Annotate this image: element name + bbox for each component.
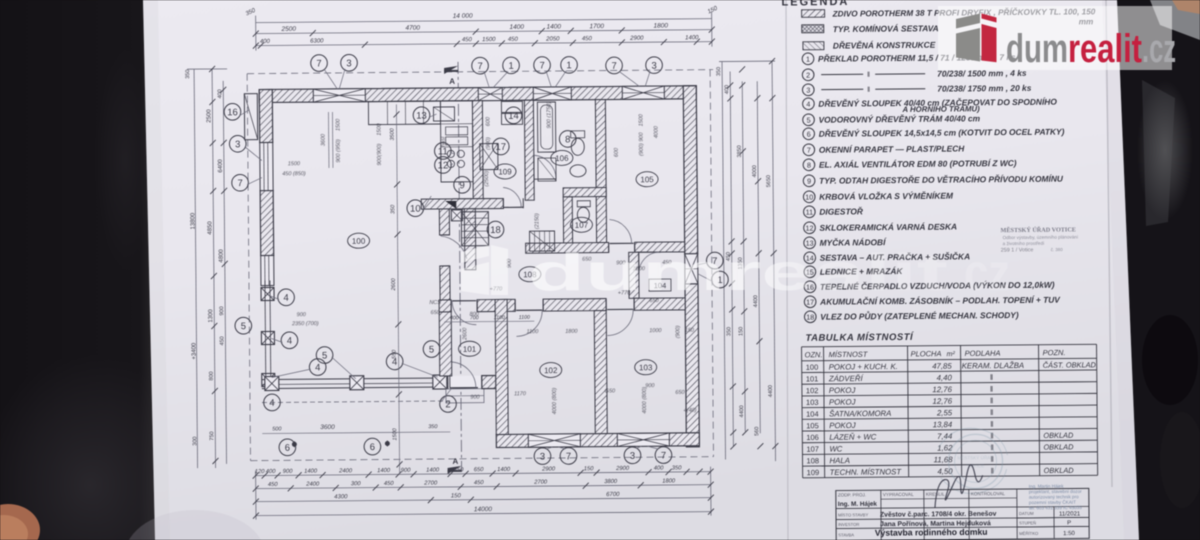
- svg-text:101: 101: [463, 345, 477, 354]
- svg-text:3: 3: [630, 451, 635, 462]
- svg-text:OBKLAD: OBKLAD: [1043, 442, 1074, 451]
- svg-text:150: 150: [685, 328, 695, 334]
- svg-text:1400: 1400: [304, 469, 318, 475]
- svg-text:8: 8: [807, 161, 811, 170]
- svg-text:750: 750: [209, 431, 215, 440]
- svg-text:101: 101: [806, 374, 819, 383]
- svg-text:450: 450: [268, 482, 278, 488]
- svg-text:350: 350: [390, 204, 396, 214]
- svg-text:5: 5: [241, 321, 246, 332]
- svg-text:tel. 603 431 339 IC 45035: tel. 603 431 339 IC 45035: [1029, 505, 1082, 510]
- svg-text:2500: 2500: [206, 109, 212, 123]
- svg-text:MĚŘÍTKO: MĚŘÍTKO: [1019, 531, 1039, 536]
- svg-text:4000 (800): 4000 (800): [642, 387, 648, 414]
- svg-text:900: 900: [645, 383, 655, 389]
- svg-text:A HORNÍHO TRÁMU): A HORNÍHO TRÁMU): [901, 104, 980, 114]
- svg-text:10: 10: [805, 193, 813, 202]
- svg-text:‖: ‖: [990, 373, 993, 382]
- svg-text:12,76: 12,76: [932, 397, 952, 406]
- svg-text:1170: 1170: [514, 391, 527, 397]
- svg-text:150: 150: [738, 327, 744, 336]
- svg-text:MÍSTO STAVBY: MÍSTO STAVBY: [838, 512, 868, 517]
- svg-text:MĚSTSKÝ ÚŘAD VOTICE: MĚSTSKÝ ÚŘAD VOTICE: [1000, 225, 1075, 234]
- svg-text:2900: 2900: [541, 467, 556, 473]
- svg-text:106: 106: [806, 433, 819, 442]
- svg-text:400: 400: [654, 466, 664, 472]
- svg-text:1800: 1800: [565, 329, 578, 335]
- svg-text:900(900): 900(900): [377, 143, 383, 165]
- svg-text:700: 700: [470, 315, 479, 321]
- svg-text:WC: WC: [829, 444, 842, 453]
- svg-text:1500: 1500: [288, 161, 301, 167]
- svg-text:3: 3: [806, 86, 810, 95]
- svg-text:900 (1750): 900 (1750): [546, 102, 552, 129]
- svg-text:7: 7: [316, 58, 321, 69]
- svg-text:13,84: 13,84: [933, 420, 953, 429]
- svg-text:TECHN. MÍSTNOST: TECHN. MÍSTNOST: [830, 467, 903, 477]
- svg-text:Odbor výstavby, územního pláno: Odbor výstavby, územního plánování: [1003, 234, 1079, 240]
- svg-text:8: 8: [565, 134, 570, 145]
- svg-text:PLOCHA: PLOCHA: [911, 349, 942, 358]
- svg-text:17: 17: [495, 142, 506, 153]
- svg-text:DŘEVĚNÝ SLOUPEK 14,5x14,5 cm: DŘEVĚNÝ SLOUPEK 14,5x14,5 cm (KOTVIT DO …: [819, 126, 1065, 139]
- svg-text:m²: m²: [947, 351, 956, 358]
- svg-text:6300: 6300: [310, 39, 324, 45]
- svg-text:POKOJ: POKOJ: [829, 397, 856, 406]
- svg-text:3: 3: [651, 61, 656, 72]
- svg-text:ČÁST. OBKLAD: ČÁST. OBKLAD: [1043, 360, 1097, 369]
- svg-text:2: 2: [806, 71, 810, 80]
- svg-text:hasl: hasl: [441, 136, 447, 147]
- svg-text:650: 650: [675, 390, 685, 396]
- svg-text:4850: 4850: [207, 221, 213, 235]
- svg-text:+3400: +3400: [191, 342, 197, 360]
- svg-text:1400: 1400: [497, 467, 511, 473]
- svg-text:.cz: .cz: [1142, 27, 1176, 71]
- svg-text:600: 600: [614, 147, 620, 157]
- svg-text:106: 106: [555, 154, 569, 163]
- svg-text:1500: 1500: [392, 427, 398, 440]
- svg-text:6: 6: [807, 130, 811, 139]
- svg-text:1500: 1500: [482, 37, 496, 43]
- svg-text:TYP. KOMÍNOVÁ SESTAVA: TYP. KOMÍNOVÁ SESTAVA: [833, 23, 939, 34]
- svg-text:2,55: 2,55: [936, 408, 953, 417]
- svg-text:pozemní stavby ČKAIT: pozemní stavby ČKAIT: [1029, 499, 1076, 505]
- svg-text:(2500): (2500): [484, 170, 490, 186]
- svg-text:1: 1: [508, 61, 513, 72]
- svg-text:2050: 2050: [545, 36, 560, 42]
- svg-text:POZN.: POZN.: [1043, 348, 1066, 357]
- svg-text:3500: 3500: [390, 127, 396, 140]
- svg-text:1700: 1700: [589, 23, 604, 30]
- svg-text:DATUM: DATUM: [1019, 511, 1034, 516]
- svg-text:300: 300: [192, 437, 198, 446]
- svg-text:4: 4: [287, 336, 292, 347]
- svg-text:(900) 900: (900) 900: [639, 132, 645, 157]
- svg-text:600: 600: [486, 116, 492, 126]
- svg-text:VYPRACOVAL: VYPRACOVAL: [883, 492, 914, 497]
- svg-text:70/238/ 1750 mm , 20 ks: 70/238/ 1750 mm , 20 ks: [937, 83, 1031, 94]
- svg-text:KERAM. DLAŽBA: KERAM. DLAŽBA: [962, 361, 1024, 371]
- svg-text:5: 5: [429, 344, 434, 355]
- svg-text:1: 1: [566, 60, 571, 71]
- svg-text:G50: G50: [605, 388, 616, 394]
- svg-text:1100: 1100: [494, 315, 505, 321]
- svg-text:2900: 2900: [629, 36, 644, 42]
- svg-text:dum: dum: [1006, 27, 1068, 71]
- svg-text:1800: 1800: [653, 23, 668, 30]
- svg-text:.cz: .cz: [952, 244, 1010, 302]
- svg-text:STUPEŇ: STUPEŇ: [1019, 520, 1036, 525]
- svg-text:7: 7: [539, 61, 544, 72]
- svg-text:6700: 6700: [606, 492, 620, 498]
- svg-text:2500: 2500: [280, 26, 296, 33]
- svg-text:105: 105: [806, 421, 819, 430]
- svg-text:dumrealit: dumrealit: [528, 244, 948, 302]
- svg-text:900: 900: [283, 469, 293, 475]
- svg-text:4300: 4300: [334, 494, 348, 500]
- svg-text:1: 1: [806, 55, 810, 64]
- svg-text:OBKLAD: OBKLAD: [1044, 466, 1075, 475]
- svg-text:47,85: 47,85: [932, 362, 952, 371]
- svg-text:900: 900: [401, 468, 411, 474]
- svg-text:SKLOKERAMICKÁ VARNÁ DESKA: SKLOKERAMICKÁ VARNÁ DESKA: [819, 221, 957, 232]
- svg-text:MÍSTNOST: MÍSTNOST: [829, 350, 869, 359]
- svg-text:104: 104: [806, 410, 819, 419]
- svg-text:450: 450: [219, 336, 225, 345]
- svg-text:ZÁDVEŘÍ: ZÁDVEŘÍ: [828, 374, 865, 383]
- svg-text:VODOROVNÝ DŘEVĚNÝ TRÁM 40/40: VODOROVNÝ DŘEVĚNÝ TRÁM 40/40 cm: [818, 112, 980, 124]
- svg-text:‖: ‖: [867, 87, 870, 94]
- svg-text:350: 350: [716, 67, 722, 76]
- svg-text:4000 (800): 4000 (800): [552, 388, 558, 415]
- svg-text:4: 4: [283, 293, 288, 304]
- svg-text:3600: 3600: [321, 133, 327, 146]
- svg-text:4: 4: [806, 100, 810, 109]
- svg-text:11: 11: [438, 146, 448, 157]
- svg-text:5650: 5650: [766, 175, 772, 187]
- svg-text:KRESLIL: KRESLIL: [926, 492, 945, 497]
- svg-text:1400: 1400: [377, 468, 391, 474]
- svg-text:‖: ‖: [990, 420, 993, 429]
- svg-text:18: 18: [490, 225, 501, 236]
- svg-text:107: 107: [806, 445, 819, 454]
- svg-text:1500: 1500: [336, 118, 342, 131]
- svg-text:4000: 4000: [654, 125, 660, 138]
- svg-text:2600: 2600: [462, 327, 468, 341]
- svg-text:400: 400: [266, 469, 276, 475]
- svg-text:A: A: [449, 77, 455, 86]
- svg-text:LEGENDA: LEGENDA: [781, 0, 849, 9]
- svg-text:13800: 13800: [190, 212, 196, 229]
- svg-text:POKOJ: POKOJ: [829, 421, 856, 430]
- svg-text:450: 450: [582, 36, 593, 42]
- svg-text:3800: 3800: [604, 479, 618, 485]
- svg-text:10: 10: [410, 204, 421, 215]
- svg-text:650: 650: [474, 467, 484, 473]
- svg-text:1100: 1100: [526, 329, 539, 335]
- svg-text:103: 103: [639, 363, 653, 372]
- svg-text:350: 350: [726, 327, 732, 336]
- svg-text:P: P: [1067, 521, 1071, 527]
- svg-text:450 (850): 450 (850): [282, 171, 306, 177]
- svg-text:100: 100: [806, 363, 819, 372]
- svg-text:6400: 6400: [218, 159, 224, 173]
- svg-text:6: 6: [285, 443, 290, 454]
- svg-text:7: 7: [611, 61, 616, 72]
- svg-text:900: 900: [297, 312, 307, 318]
- svg-text:DŘEVĚNÁ KONSTRUKCE: DŘEVĚNÁ KONSTRUKCE: [833, 39, 936, 51]
- svg-text:9: 9: [807, 177, 811, 186]
- svg-text:7: 7: [566, 451, 571, 462]
- svg-text:KRBOVÁ VLOŽKA S VÝMĚNÍKEM: KRBOVÁ VLOŽKA S VÝMĚNÍKEM: [819, 190, 954, 202]
- svg-text:4800: 4800: [219, 249, 225, 263]
- svg-text:EL. AXIÁL VENTILÁTOR EDM 80 (: EL. AXIÁL VENTILÁTOR EDM 80 (POTRUBÍ Z W…: [819, 158, 1017, 170]
- svg-text:100: 100: [352, 237, 366, 246]
- svg-text:3: 3: [346, 58, 351, 69]
- svg-text:150: 150: [451, 493, 462, 499]
- svg-text:12: 12: [438, 160, 449, 171]
- svg-text:‖: ‖: [990, 408, 993, 417]
- svg-text:KONTROLOVAL: KONTROLOVAL: [971, 491, 1006, 496]
- svg-text:900: 900: [219, 306, 225, 315]
- svg-text:109: 109: [498, 167, 512, 176]
- svg-text:400: 400: [260, 39, 271, 45]
- svg-text:400: 400: [450, 315, 459, 321]
- svg-text:4,40: 4,40: [937, 373, 953, 382]
- svg-text:Ing. M. Hájek: Ing. M. Hájek: [838, 501, 878, 508]
- svg-text:(2150): (2150): [534, 213, 540, 229]
- svg-text:A: A: [452, 457, 458, 466]
- svg-text:č. 380: č. 380: [1051, 247, 1064, 252]
- svg-text:450: 450: [508, 37, 519, 43]
- svg-text:2900: 2900: [615, 466, 630, 472]
- svg-text:9: 9: [459, 180, 464, 191]
- svg-text:800: 800: [209, 371, 215, 380]
- svg-text:3: 3: [235, 139, 240, 150]
- svg-text:OZN.: OZN.: [805, 350, 823, 359]
- svg-text:1400: 1400: [685, 35, 699, 41]
- svg-text:4000: 4000: [752, 165, 758, 177]
- svg-text:2: 2: [445, 399, 450, 410]
- svg-text:3: 3: [540, 452, 545, 463]
- svg-text:14 000: 14 000: [453, 13, 473, 20]
- svg-text:VLEZ DO PŮDY (ZATEPLENÉ MECHA: VLEZ DO PŮDY (ZATEPLENÉ MECHAN. SCHODY): [820, 309, 1019, 322]
- svg-text:11,68: 11,68: [934, 455, 954, 464]
- svg-text:TABULKA MÍSTNOSTÍ: TABULKA MÍSTNOSTÍ: [805, 332, 915, 344]
- svg-text:650: 650: [431, 310, 441, 316]
- svg-text:500: 500: [272, 426, 282, 432]
- svg-text:1500: 1500: [638, 113, 644, 126]
- svg-text:11: 11: [806, 208, 814, 217]
- svg-text:4(40): 4(40): [684, 408, 697, 414]
- svg-text:POKOJ: POKOJ: [829, 386, 856, 395]
- svg-text:11/2021: 11/2021: [1059, 511, 1081, 517]
- svg-text:OKENNÍ PARAPET — PLAST/PLECH: OKENNÍ PARAPET — PLAST/PLECH: [819, 143, 966, 154]
- svg-text:16: 16: [227, 107, 238, 118]
- svg-text:450: 450: [474, 480, 484, 486]
- svg-text:(900): (900): [675, 325, 681, 338]
- svg-text:7: 7: [477, 61, 482, 72]
- svg-text:3600: 3600: [320, 424, 335, 431]
- svg-text:3850: 3850: [737, 145, 743, 157]
- svg-text:1400: 1400: [426, 468, 440, 474]
- svg-text:1300: 1300: [208, 309, 214, 323]
- svg-text:2700: 2700: [533, 480, 548, 486]
- svg-text:350: 350: [185, 70, 191, 79]
- svg-text:ZODP. PROJ.: ZODP. PROJ.: [838, 492, 866, 497]
- svg-text:7: 7: [237, 178, 242, 189]
- svg-text:4400: 4400: [739, 405, 745, 417]
- svg-text:5: 5: [807, 116, 811, 125]
- svg-text:INVESTOR: INVESTOR: [838, 522, 859, 527]
- svg-text:102: 102: [806, 386, 819, 395]
- svg-text:350: 350: [428, 424, 438, 430]
- svg-text:560: 560: [754, 427, 760, 436]
- svg-text:STAVBA: STAVBA: [838, 532, 854, 537]
- svg-text:14000: 14000: [474, 506, 493, 513]
- svg-text:4: 4: [315, 362, 320, 373]
- svg-text:Zvěstov č.parc. 1708/4 okr. B: Zvěstov č.parc. 1708/4 okr. Benešov: [880, 511, 997, 519]
- svg-text:105: 105: [640, 175, 654, 184]
- svg-text:7: 7: [807, 146, 811, 155]
- svg-text:1100: 1100: [519, 315, 530, 321]
- svg-text:‖: ‖: [867, 72, 870, 79]
- svg-text:150: 150: [584, 466, 594, 472]
- svg-text:(900): (900): [486, 137, 492, 150]
- svg-text:900 (950): 900 (950): [336, 139, 342, 163]
- svg-text:POKOJ + KUCH. K.: POKOJ + KUCH. K.: [829, 362, 898, 372]
- svg-text:4700: 4700: [405, 25, 420, 32]
- svg-text:18: 18: [806, 313, 814, 322]
- svg-text:ŠATNA/KOMORA: ŠATNA/KOMORA: [829, 409, 891, 419]
- svg-text:2400: 2400: [305, 482, 320, 488]
- svg-text:2600: 2600: [391, 277, 397, 291]
- svg-text:900: 900: [470, 395, 480, 401]
- svg-text:‖: ‖: [990, 396, 993, 405]
- svg-text:2400: 2400: [338, 468, 353, 474]
- svg-text:103: 103: [806, 398, 819, 407]
- svg-text:12: 12: [805, 224, 813, 233]
- svg-text:2700: 2700: [423, 481, 438, 487]
- svg-text:107: 107: [575, 221, 589, 230]
- svg-text:1400: 1400: [546, 23, 561, 30]
- svg-text:300: 300: [351, 481, 361, 487]
- svg-text:108: 108: [806, 456, 819, 465]
- svg-text:1400: 1400: [509, 24, 524, 31]
- svg-text:109: 109: [807, 468, 820, 477]
- svg-text:LÁZEŇ + WC: LÁZEŇ + WC: [829, 432, 876, 441]
- svg-text:‖: ‖: [990, 385, 993, 394]
- svg-text:PODLAHA: PODLAHA: [965, 349, 1001, 358]
- svg-text:1:50: 1:50: [1063, 531, 1075, 537]
- svg-text:5: 5: [322, 350, 327, 361]
- svg-text:350: 350: [672, 465, 682, 471]
- svg-text:13: 13: [416, 111, 427, 122]
- svg-text:102: 102: [544, 366, 558, 375]
- svg-text:120: 120: [255, 469, 265, 475]
- svg-text:1800: 1800: [662, 478, 676, 484]
- svg-text:7: 7: [661, 450, 666, 461]
- svg-text:450: 450: [384, 481, 394, 487]
- svg-text:realit: realit: [1068, 27, 1142, 71]
- svg-text:1000: 1000: [649, 328, 662, 334]
- svg-text:6: 6: [370, 442, 375, 453]
- svg-text:HALA: HALA: [829, 456, 849, 465]
- svg-text:12,76: 12,76: [932, 385, 952, 394]
- svg-text:NCS: NCS: [429, 300, 441, 306]
- svg-text:2350 (700): 2350 (700): [291, 321, 319, 327]
- svg-text:4400: 4400: [768, 385, 774, 397]
- svg-text:TYP. ODTAH DIGESTOŘE DO VĚTRAC: TYP. ODTAH DIGESTOŘE DO VĚTRACÍHO PŘÍVOD…: [819, 173, 1064, 186]
- svg-text:1500: 1500: [377, 122, 383, 135]
- svg-text:4: 4: [269, 398, 274, 409]
- svg-text:DIGESTOŘ: DIGESTOŘ: [819, 205, 863, 216]
- svg-text:14: 14: [508, 111, 519, 122]
- svg-text:Výstavba rodinného domku: Výstavba rodinného domku: [875, 527, 988, 538]
- svg-text:550: 550: [392, 349, 398, 359]
- svg-text:OBKLAD: OBKLAD: [1043, 431, 1074, 440]
- svg-text:450: 450: [462, 37, 473, 43]
